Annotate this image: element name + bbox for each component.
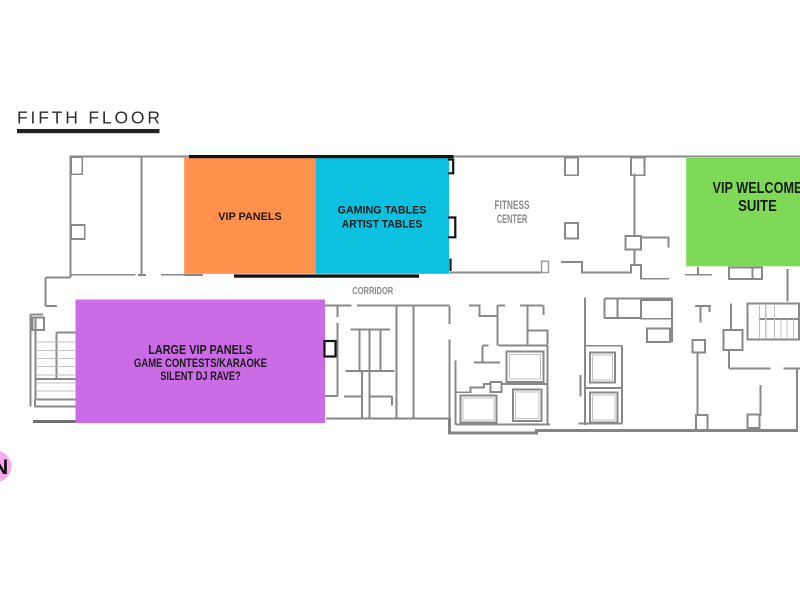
svg-text:N: N xyxy=(0,455,8,479)
svg-text:FIFTH FLOOR: FIFTH FLOOR xyxy=(17,108,160,128)
svg-text:ARTIST TABLES: ARTIST TABLES xyxy=(342,219,423,231)
svg-text:SUITE: SUITE xyxy=(738,198,777,215)
svg-text:FITNESS: FITNESS xyxy=(495,200,530,212)
svg-text:VIP WELCOME: VIP WELCOME xyxy=(713,180,800,197)
svg-text:GAMING TABLES: GAMING TABLES xyxy=(338,204,427,216)
svg-text:CENTER: CENTER xyxy=(497,214,528,226)
svg-text:LARGE VIP PANELS: LARGE VIP PANELS xyxy=(148,342,253,357)
svg-text:SILENT DJ RAVE?: SILENT DJ RAVE? xyxy=(160,370,241,383)
svg-text:GAME CONTESTS/KARAOKE: GAME CONTESTS/KARAOKE xyxy=(134,357,267,370)
svg-text:VIP PANELS: VIP PANELS xyxy=(218,211,282,223)
svg-text:CORRIDOR: CORRIDOR xyxy=(352,286,393,297)
